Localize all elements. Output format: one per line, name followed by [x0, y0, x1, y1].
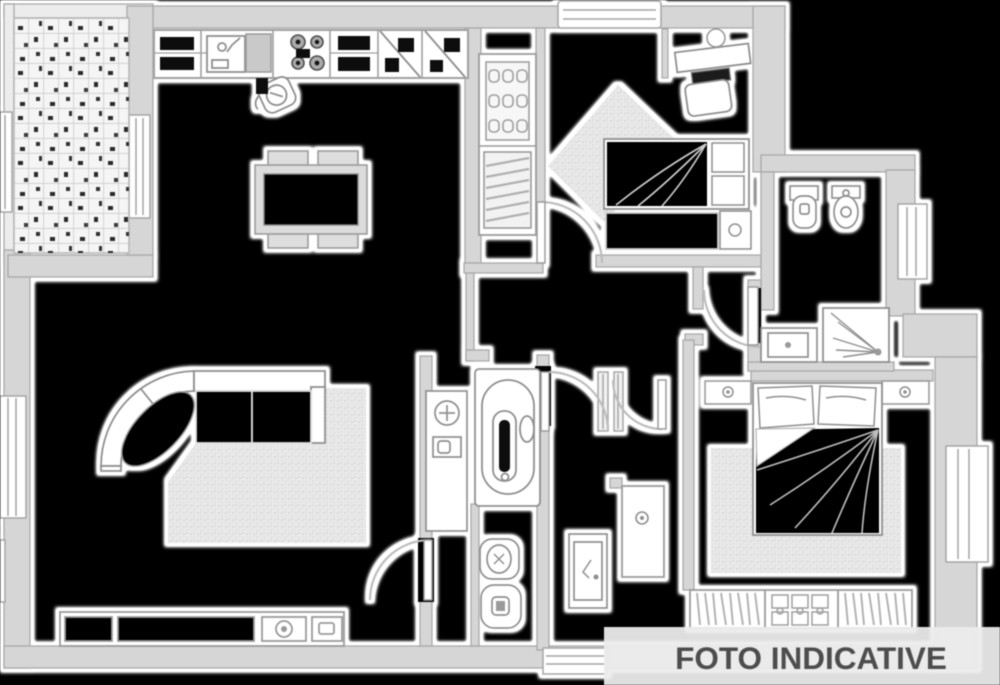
- svg-text:FOTO INDICATIVE: FOTO INDICATIVE: [675, 640, 947, 676]
